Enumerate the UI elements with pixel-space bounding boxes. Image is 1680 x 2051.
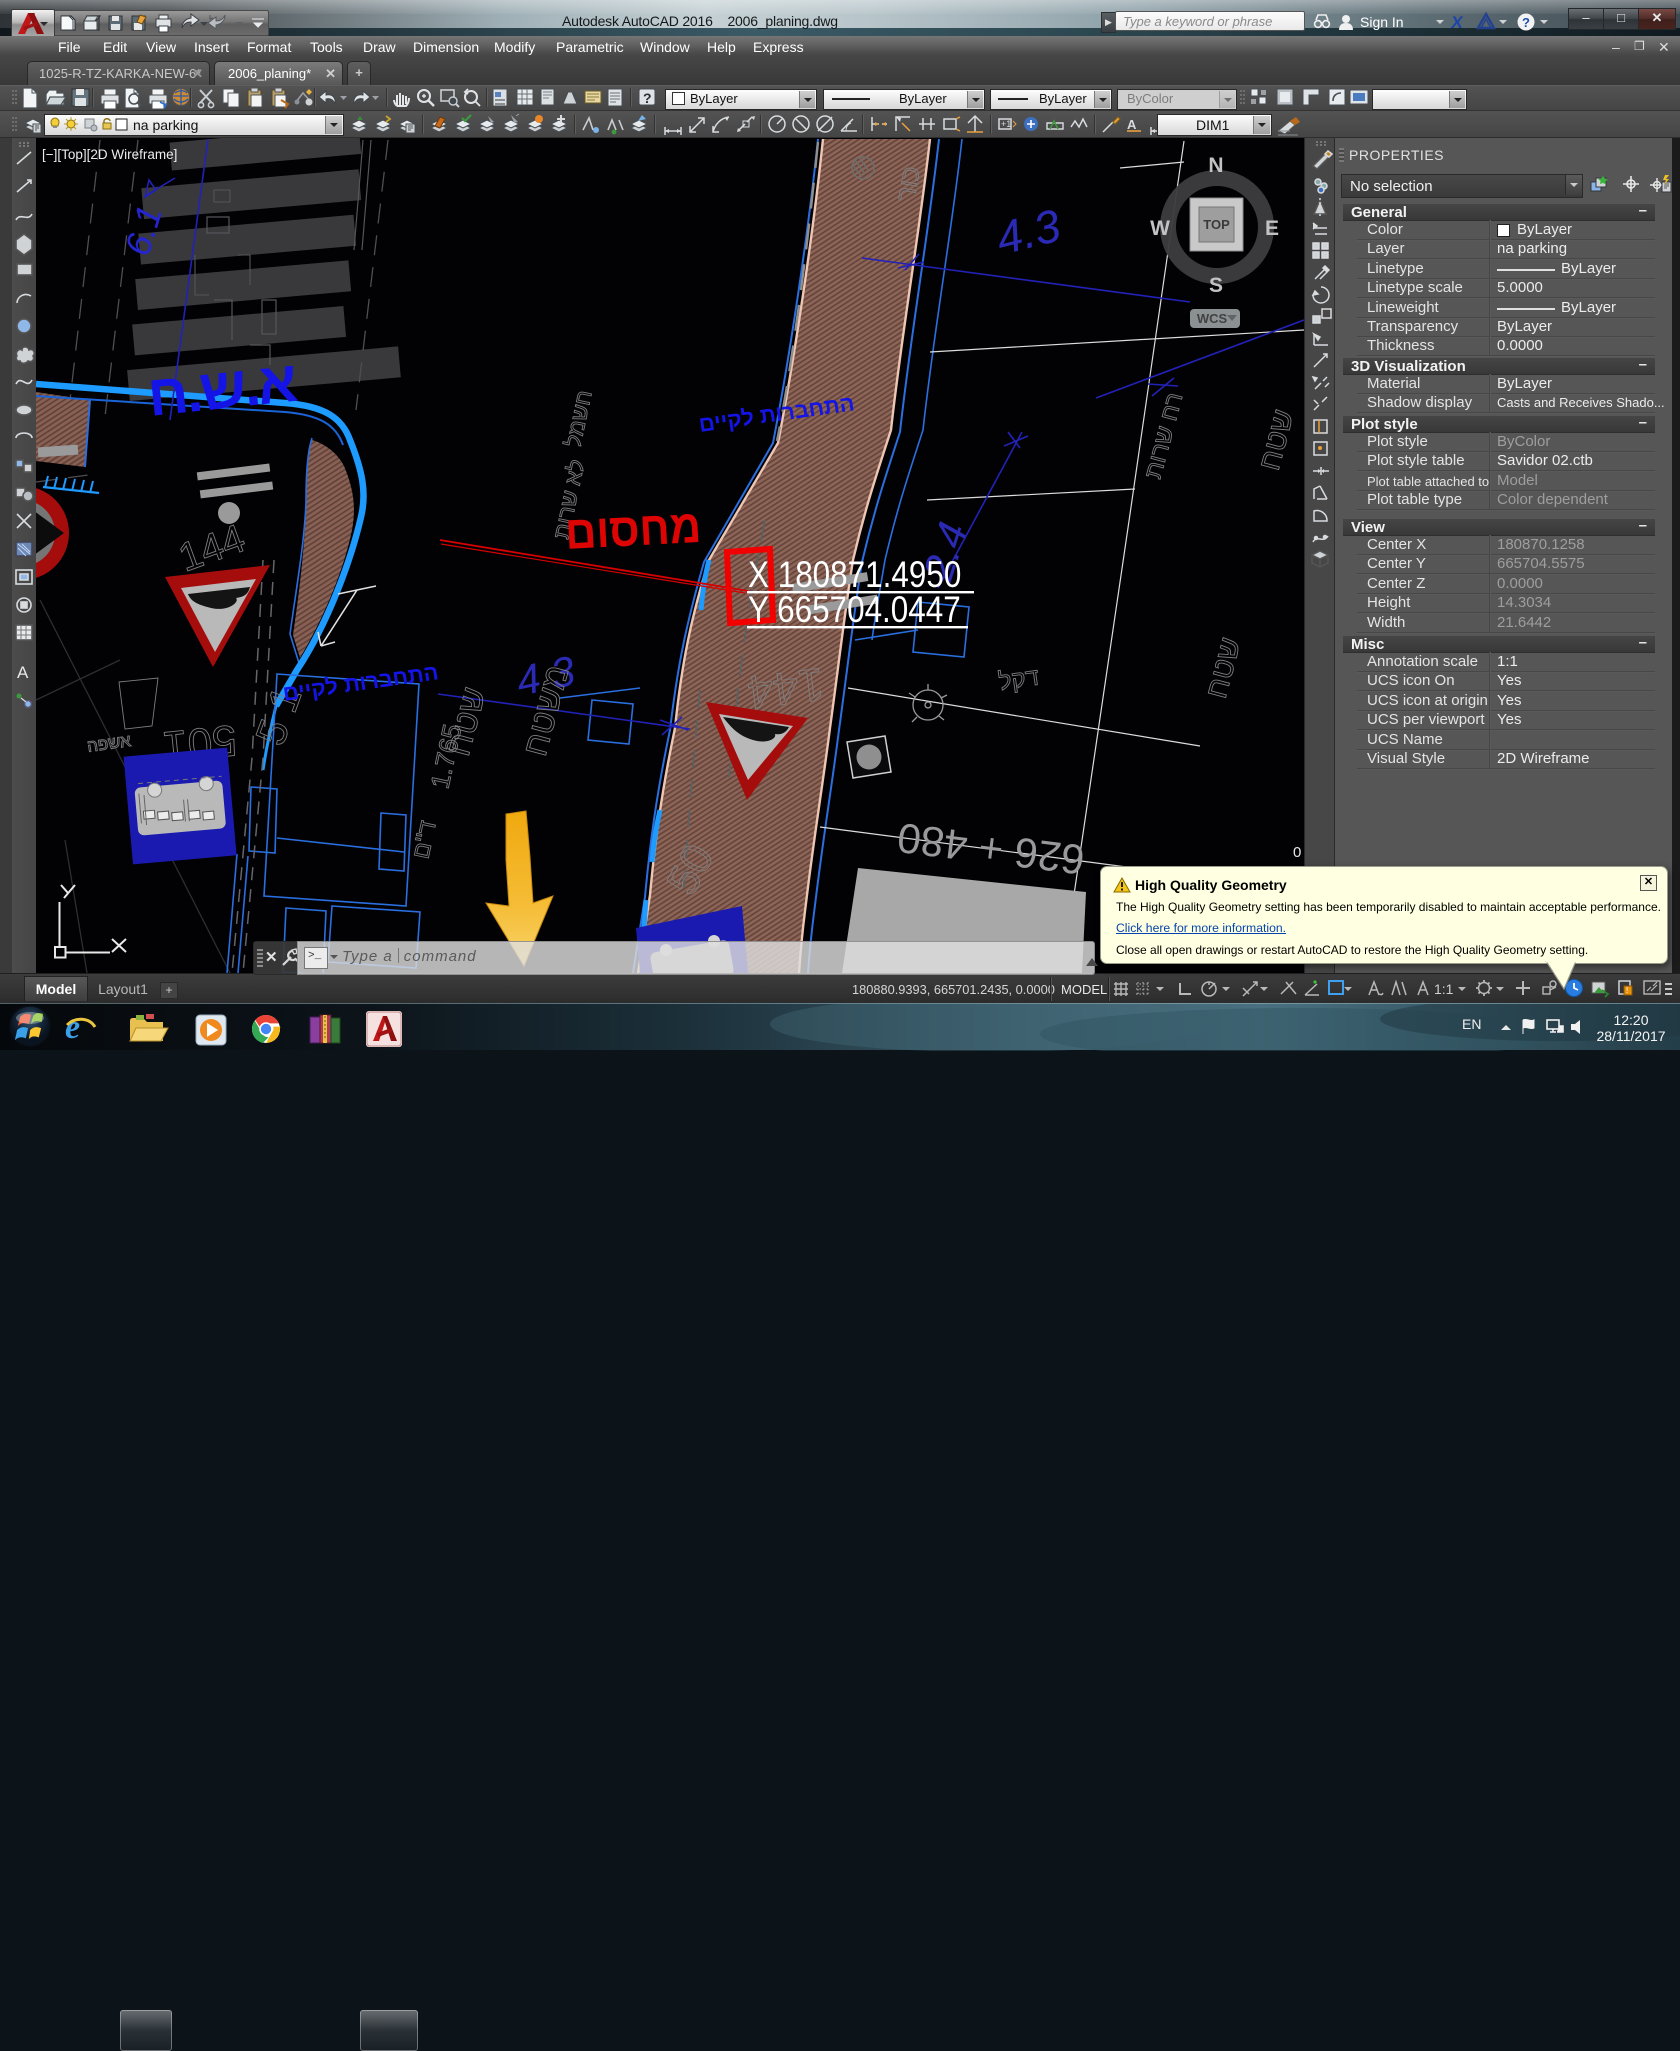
- svg-text:0: 0: [1293, 844, 1301, 861]
- svg-text:[−][Top][2D Wireframe]: [−][Top][2D Wireframe]: [42, 147, 177, 162]
- svg-text:W: W: [1150, 217, 1170, 240]
- svg-text:דקל: דקל: [997, 664, 1041, 696]
- svg-text:A: A: [1127, 117, 1137, 132]
- svg-text:X: X: [1450, 13, 1465, 32]
- svg-text:מחסום: מחסום: [564, 499, 703, 559]
- svg-text:TOP: TOP: [1203, 217, 1230, 232]
- svg-text:E: E: [1265, 217, 1279, 240]
- svg-text:S: S: [1209, 274, 1223, 297]
- svg-text:Y 665704.0447: Y 665704.0447: [748, 590, 961, 631]
- svg-text:+1: +1: [1001, 119, 1011, 129]
- svg-text:כור: כור: [890, 164, 925, 203]
- svg-text:WCS: WCS: [1197, 311, 1228, 326]
- svg-text:144: 144: [745, 658, 828, 719]
- svg-text:N: N: [1208, 154, 1223, 177]
- svg-text:?: ?: [643, 90, 652, 106]
- svg-text:1:1: 1:1: [1434, 981, 1454, 997]
- svg-text:A: A: [17, 663, 29, 682]
- svg-text:e: e: [65, 1009, 80, 1046]
- svg-text:?: ?: [1522, 15, 1530, 30]
- svg-text:Sign In: Sign In: [1360, 14, 1404, 30]
- svg-text:!: !: [1626, 986, 1628, 995]
